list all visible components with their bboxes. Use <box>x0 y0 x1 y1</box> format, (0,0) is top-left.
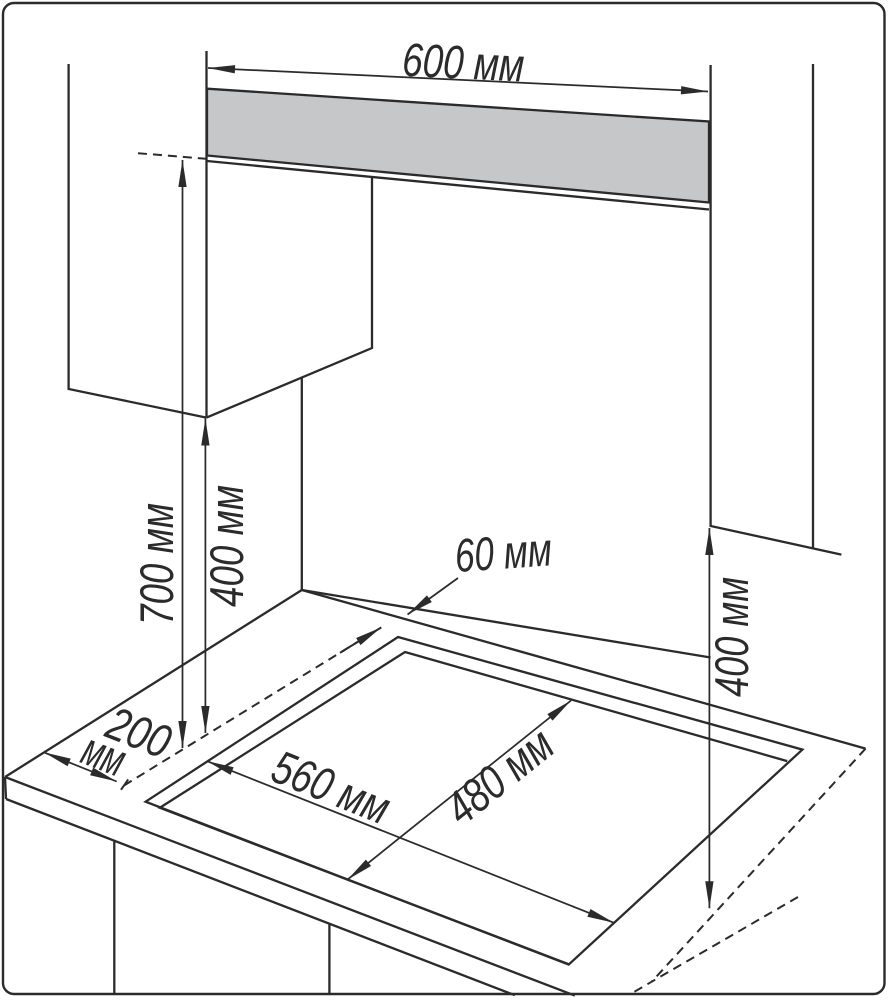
svg-text:400 мм: 400 мм <box>200 485 253 607</box>
svg-text:600 мм: 600 мм <box>401 33 525 92</box>
svg-text:480 мм: 480 мм <box>435 717 563 835</box>
svg-text:700 мм: 700 мм <box>130 503 183 625</box>
svg-text:560 мм: 560 мм <box>265 740 398 835</box>
svg-text:60 мм: 60 мм <box>453 522 553 582</box>
svg-text:400 мм: 400 мм <box>705 577 758 697</box>
